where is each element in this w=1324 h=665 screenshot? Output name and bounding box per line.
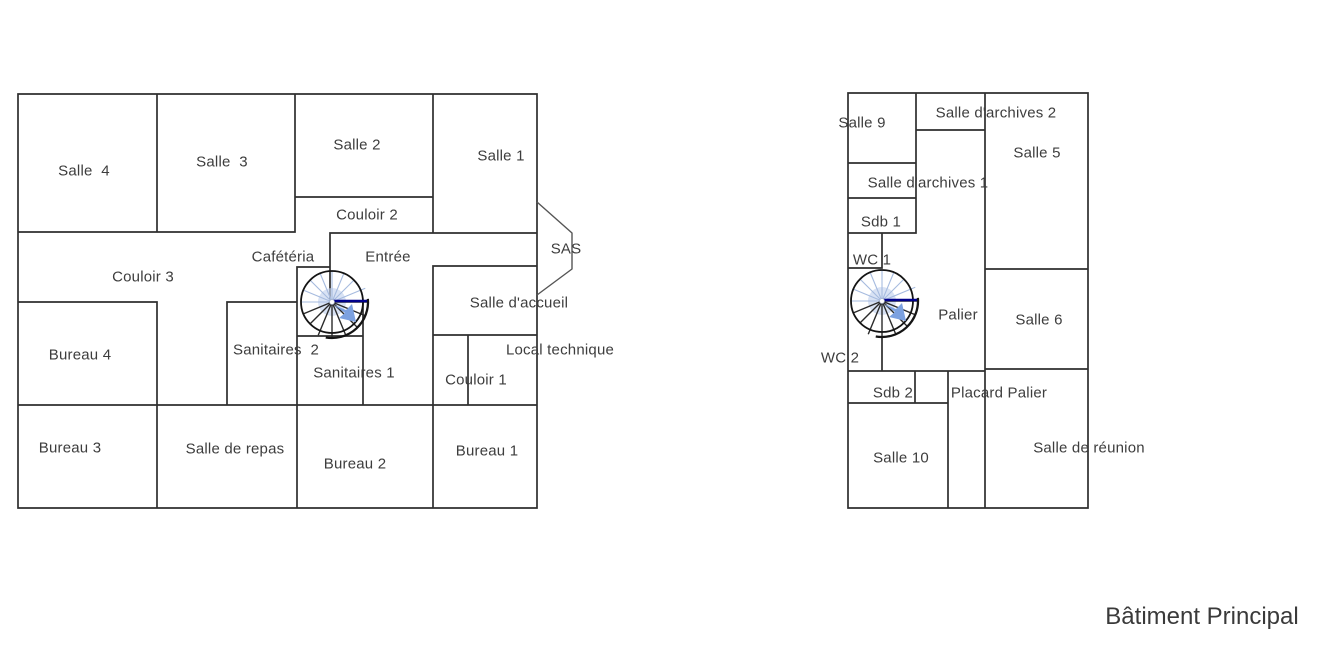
room-label-wc-1: WC 1	[853, 252, 891, 269]
spiral-staircase-icon-ground	[301, 271, 368, 338]
floor-plan-canvas: Salle 4 Salle 3 Salle 2 Salle 1 Couloir …	[0, 0, 1324, 665]
room-label-salle-de-repas: Salle de repas	[186, 441, 285, 458]
room-label-couloir-2: Couloir 2	[336, 207, 398, 224]
room-label-bureau-4: Bureau 4	[49, 347, 111, 364]
room-label-cafeteria: Cafétéria	[252, 249, 315, 266]
room-label-wc-2: WC 2	[821, 350, 859, 367]
room-label-salle-darchives-1: Salle d'archives 1	[868, 175, 989, 192]
room-label-salle-3: Salle 3	[196, 154, 248, 171]
room-label-couloir-3: Couloir 3	[112, 269, 174, 286]
room-label-salle-de-reunion: Salle de réunion	[1033, 440, 1145, 457]
room-label-palier: Palier	[938, 307, 978, 324]
room-label-local-technique: Local technique	[506, 342, 614, 359]
room-label-salle-5: Salle 5	[1013, 145, 1060, 162]
building-title: Bâtiment Principal	[1105, 603, 1298, 631]
room-label-bureau-2: Bureau 2	[324, 456, 386, 473]
room-label-bureau-1: Bureau 1	[456, 443, 518, 460]
room-label-sanitaires-1: Sanitaires 1	[313, 365, 395, 382]
spiral-staircase-icon-upper	[851, 270, 918, 337]
room-label-placard-palier: Placard Palier	[951, 385, 1047, 402]
room-label-sdb-1: Sdb 1	[861, 214, 901, 231]
room-label-couloir-1: Couloir 1	[445, 372, 507, 389]
room-label-salle-1: Salle 1	[477, 148, 524, 165]
room-label-salle-2: Salle 2	[333, 137, 380, 154]
room-label-salle-10: Salle 10	[873, 450, 929, 467]
room-label-sdb-2: Sdb 2	[873, 385, 913, 402]
room-label-sas: SAS	[551, 241, 582, 258]
room-label-salle-6: Salle 6	[1015, 312, 1062, 329]
room-label-salle-darchives-2: Salle d'archives 2	[936, 105, 1057, 122]
room-label-salle-daccueil: Salle d'accueil	[470, 295, 568, 312]
room-label-bureau-3: Bureau 3	[39, 440, 101, 457]
room-label-salle-9: Salle 9	[838, 115, 885, 132]
room-label-salle-4: Salle 4	[58, 163, 110, 180]
floorplan-drawing	[0, 0, 1324, 665]
room-label-entree: Entrée	[365, 249, 410, 266]
room-label-sanitaires-2: Sanitaires 2	[233, 342, 319, 359]
